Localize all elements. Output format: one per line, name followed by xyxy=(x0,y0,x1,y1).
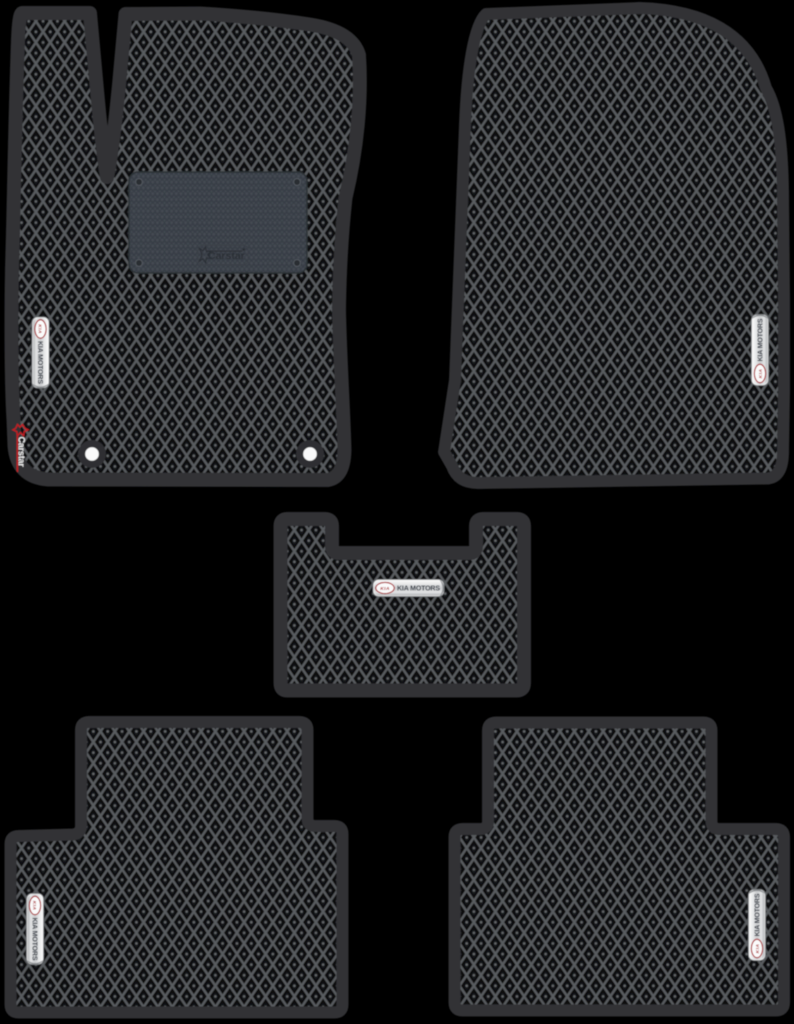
svg-text:Carstar: Carstar xyxy=(208,250,245,262)
